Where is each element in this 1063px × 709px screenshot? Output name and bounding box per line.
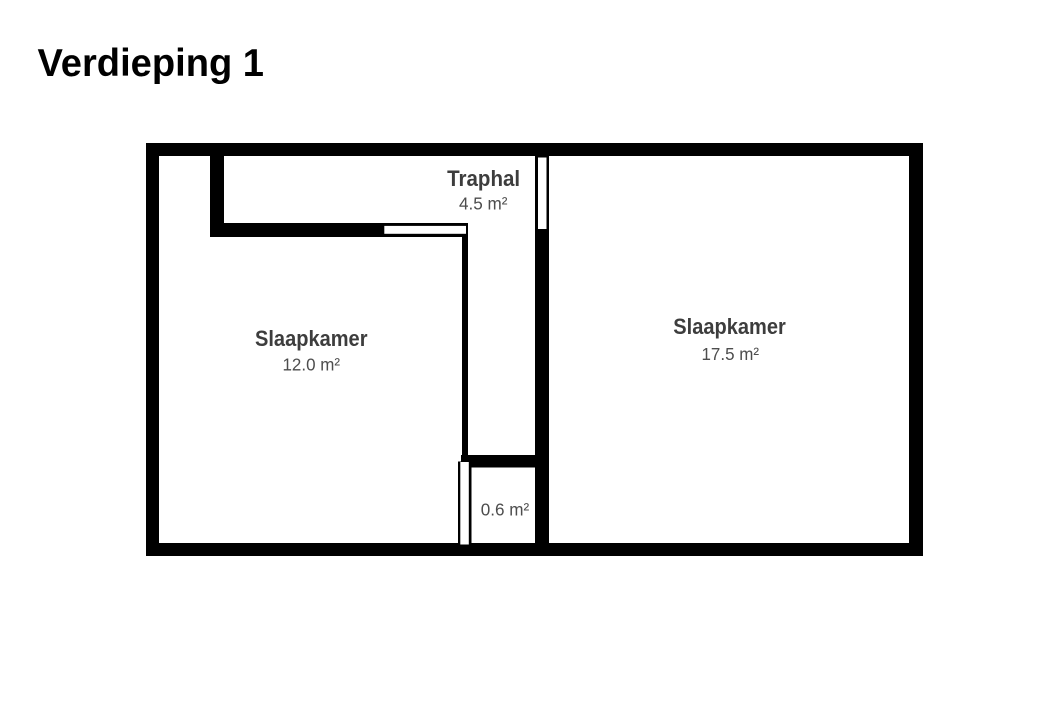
- svg-text:Slaapkamer: Slaapkamer: [673, 314, 786, 339]
- svg-text:17.5 m²: 17.5 m²: [702, 344, 760, 364]
- svg-text:12.0 m²: 12.0 m²: [283, 355, 341, 375]
- svg-text:Traphal: Traphal: [447, 166, 520, 191]
- svg-text:0.6 m²: 0.6 m²: [481, 500, 530, 520]
- svg-text:Slaapkamer: Slaapkamer: [255, 326, 368, 351]
- svg-text:Verdieping 1: Verdieping 1: [38, 42, 265, 85]
- svg-text:4.5 m²: 4.5 m²: [459, 194, 508, 214]
